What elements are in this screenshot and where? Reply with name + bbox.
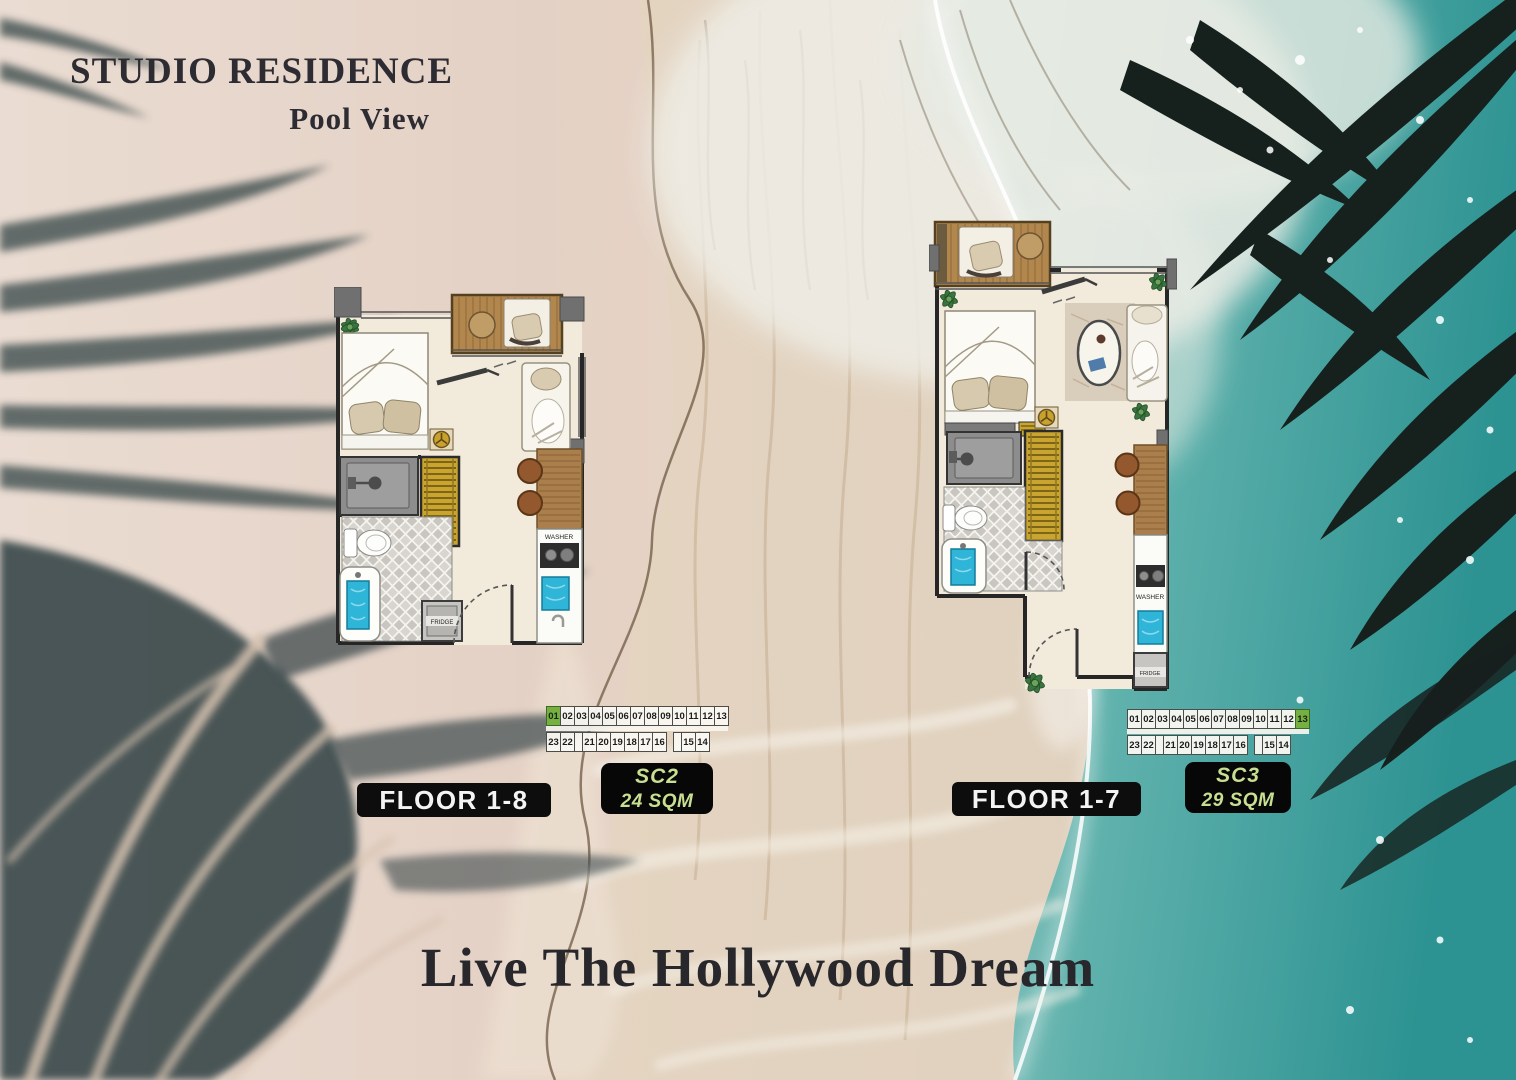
unit-number-cell: 15 (1262, 735, 1277, 755)
balcony-table (469, 312, 495, 338)
unit-number-strip-sc2: 01020304050607080910111213 2322212019181… (546, 706, 728, 752)
washer-label: WASHER (1136, 594, 1165, 601)
unit-number-cell: 16 (1233, 735, 1248, 755)
floorplan-sc2: FRIDGE WASHER (334, 287, 596, 661)
sofa (522, 363, 570, 451)
brochure-page: STUDIO RESIDENCE Pool View (0, 0, 1516, 1080)
unit-number-cell: 17 (1219, 735, 1234, 755)
unit-number-cell: 08 (1225, 709, 1240, 729)
kitchen-counter: WASHER (537, 529, 582, 643)
unit-strip-top-row: 01020304050607080910111213 (546, 706, 728, 726)
unit-number-cell: 07 (1211, 709, 1226, 729)
unit-area: 29 SQM (1185, 790, 1291, 812)
vanity-sink (340, 567, 380, 641)
beach-aerial-background (0, 0, 1516, 1080)
unit-number-cell: 09 (1239, 709, 1254, 729)
unit-number-cell: 06 (616, 706, 631, 726)
unit-number-cell: 15 (681, 732, 696, 752)
unit-number-cell: 14 (695, 732, 710, 752)
unit-type-badge-sc2: SC2 24 SQM (601, 763, 713, 814)
toilet (344, 529, 391, 557)
unit-number-cell: 23 (1127, 735, 1142, 755)
unit-number-cell: 06 (1197, 709, 1212, 729)
stove (540, 543, 579, 568)
unit-number-cell: 07 (630, 706, 645, 726)
fan-symbol-icon (430, 429, 453, 450)
unit-area: 24 SQM (601, 791, 713, 813)
vanity-sink (942, 539, 986, 593)
unit-number-cell: 03 (574, 706, 589, 726)
washer-label: WASHER (545, 534, 574, 541)
unit-number-cell: 12 (700, 706, 715, 726)
bed (945, 311, 1045, 436)
unit-code: SC2 (601, 765, 713, 789)
fridge: FRIDGE (422, 601, 462, 641)
header: STUDIO RESIDENCE Pool View (70, 50, 430, 137)
shower (947, 432, 1021, 484)
floorplan-sc3: WASHER FRIDGE (929, 219, 1177, 707)
unit-number-cell: 14 (1276, 735, 1291, 755)
page-title: STUDIO RESIDENCE (70, 50, 430, 93)
unit-strip-bottom-row: 23222120191817161514 (1127, 735, 1309, 755)
pillow (382, 399, 421, 435)
unit-type-badge-sc3: SC3 29 SQM (1185, 762, 1291, 813)
dining-table (1134, 445, 1167, 535)
unit-number-cell: 04 (1169, 709, 1184, 729)
unit-strip-top-row: 01020304050607080910111213 (1127, 709, 1309, 729)
bed (342, 333, 428, 449)
unit-number-cell: 22 (560, 732, 575, 752)
unit-number-cell: 18 (1205, 735, 1220, 755)
strip-corridor-bar (546, 726, 728, 731)
unit-number-cell: 08 (644, 706, 659, 726)
wardrobe (1025, 431, 1062, 541)
stove (1136, 565, 1165, 587)
kitchen-sink (542, 577, 569, 610)
unit-number-cell: 21 (582, 732, 597, 752)
tagline: Live The Hollywood Dream (0, 936, 1516, 999)
balcony (935, 222, 1050, 286)
unit-number-cell: 16 (652, 732, 667, 752)
fridge: FRIDGE (1134, 653, 1167, 687)
pillow (987, 375, 1028, 411)
strip-corridor-bar (1127, 729, 1309, 734)
toilet (943, 505, 987, 531)
unit-number-cell: 09 (658, 706, 673, 726)
coffee-table (1078, 321, 1120, 385)
dining-table (537, 449, 582, 529)
unit-number-cell: 02 (560, 706, 575, 726)
unit-number-cell: 20 (596, 732, 611, 752)
unit-number-cell: 01 (1127, 709, 1142, 729)
unit-strip-bottom-row: 23222120191817161514 (546, 732, 728, 752)
unit-number-cell: 10 (672, 706, 687, 726)
unit-number-cell: 20 (1177, 735, 1192, 755)
balcony-table (1017, 233, 1043, 259)
shower (340, 457, 418, 515)
unit-number-cell: 21 (1163, 735, 1178, 755)
unit-number-cell: 18 (624, 732, 639, 752)
unit-number-cell: 10 (1253, 709, 1268, 729)
unit-number-cell: 13 (714, 706, 729, 726)
unit-number-cell: 03 (1155, 709, 1170, 729)
fridge-label: FRIDGE (1140, 671, 1161, 677)
kitchen-counter: WASHER FRIDGE (1134, 535, 1167, 687)
unit-number-cell: 22 (1141, 735, 1156, 755)
sofa (1127, 305, 1167, 401)
unit-code: SC3 (1185, 764, 1291, 788)
unit-number-cell: 19 (1191, 735, 1206, 755)
unit-number-cell: 13 (1295, 709, 1310, 729)
floor-range-label-sc3: FLOOR 1-7 (952, 782, 1141, 816)
unit-number-cell: 12 (1281, 709, 1296, 729)
unit-number-cell: 04 (588, 706, 603, 726)
balcony (452, 295, 562, 353)
unit-number-cell: 11 (1267, 709, 1282, 729)
unit-number-strip-sc3: 01020304050607080910111213 2322212019181… (1127, 709, 1309, 755)
unit-number-cell: 02 (1141, 709, 1156, 729)
floor-range-label-sc2: FLOOR 1-8 (357, 783, 551, 817)
unit-number-cell: 01 (546, 706, 561, 726)
fan-symbol-icon (1035, 407, 1058, 428)
kitchen-sink (1138, 611, 1163, 644)
pillow (951, 377, 991, 412)
page-subtitle: Pool View (70, 101, 430, 137)
pillow (348, 401, 386, 435)
fridge-label: FRIDGE (431, 620, 454, 626)
unit-number-cell: 11 (686, 706, 701, 726)
unit-number-cell: 19 (610, 732, 625, 752)
unit-number-cell: 17 (638, 732, 653, 752)
unit-number-cell: 23 (546, 732, 561, 752)
unit-number-cell: 05 (1183, 709, 1198, 729)
unit-number-cell: 05 (602, 706, 617, 726)
